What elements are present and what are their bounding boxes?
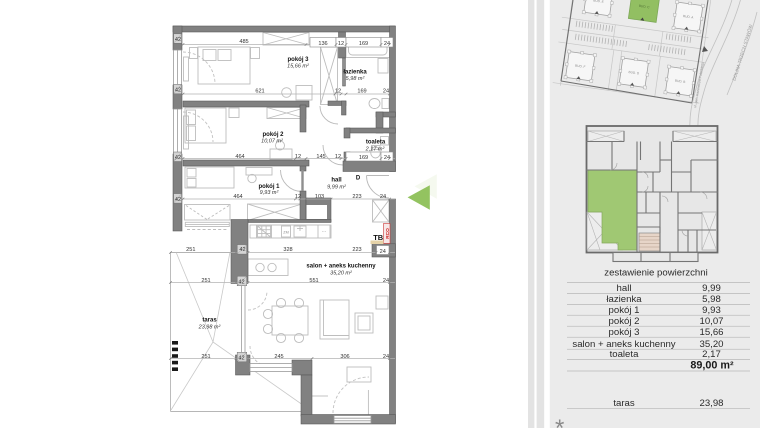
svg-text:621: 621 <box>255 89 264 95</box>
svg-text:23,98 m²: 23,98 m² <box>198 325 221 331</box>
svg-text:23,98: 23,98 <box>699 398 723 409</box>
svg-text:24: 24 <box>383 89 389 95</box>
svg-text:145: 145 <box>316 154 325 160</box>
svg-text:toaleta: toaleta <box>366 140 386 146</box>
svg-text:toaleta: toaleta <box>610 349 639 360</box>
svg-text:551: 551 <box>309 278 318 284</box>
svg-text:464: 464 <box>235 154 244 160</box>
svg-text:10,07: 10,07 <box>699 316 723 327</box>
svg-text:ZM: ZM <box>283 231 288 235</box>
svg-text:pokój 1: pokój 1 <box>609 305 640 316</box>
svg-text:hall: hall <box>617 283 632 294</box>
svg-text:···: ··· <box>322 229 327 235</box>
svg-text:pokój 3: pokój 3 <box>609 327 640 338</box>
svg-text:9,99 m²: 9,99 m² <box>327 185 346 191</box>
svg-text:245: 245 <box>274 354 283 360</box>
svg-text:5,98 m²: 5,98 m² <box>346 76 365 82</box>
svg-text:łazienka: łazienka <box>606 294 642 305</box>
svg-text:42: 42 <box>239 247 245 253</box>
svg-text:136: 136 <box>318 41 327 47</box>
svg-text:89,00 m²: 89,00 m² <box>690 360 734 372</box>
svg-text:42: 42 <box>238 355 244 361</box>
svg-text:pokój 2: pokój 2 <box>609 316 640 327</box>
svg-text:306: 306 <box>340 354 349 360</box>
svg-text:RCO: RCO <box>385 228 391 239</box>
svg-text:251: 251 <box>201 354 210 360</box>
svg-text:251: 251 <box>186 247 195 253</box>
svg-text:169: 169 <box>357 89 366 95</box>
svg-text:zestawienie powierzchni: zestawienie powierzchni <box>604 268 707 279</box>
svg-text:2,17: 2,17 <box>702 349 721 360</box>
svg-text:328: 328 <box>283 247 292 253</box>
svg-text:D: D <box>356 176 361 182</box>
svg-text:42: 42 <box>175 155 181 161</box>
svg-text:251: 251 <box>201 278 210 284</box>
svg-text:15,66 m²: 15,66 m² <box>287 64 309 70</box>
svg-text:pokój 3: pokój 3 <box>287 57 309 63</box>
svg-text:42: 42 <box>175 37 181 43</box>
svg-text:2,17 m²: 2,17 m² <box>365 147 385 153</box>
svg-text:24: 24 <box>384 155 390 161</box>
svg-text:taras: taras <box>202 318 217 324</box>
svg-text:42: 42 <box>175 197 181 203</box>
svg-text:24: 24 <box>380 249 386 255</box>
svg-text:10,07 m²: 10,07 m² <box>261 139 283 145</box>
svg-text:9,99: 9,99 <box>702 283 721 294</box>
svg-text:103: 103 <box>315 194 324 200</box>
svg-text:464: 464 <box>233 194 242 200</box>
svg-text:12: 12 <box>295 154 301 160</box>
svg-text:24: 24 <box>383 278 389 284</box>
svg-text:*: * <box>555 415 564 428</box>
svg-text:42: 42 <box>175 88 181 94</box>
svg-text:12: 12 <box>338 41 344 47</box>
svg-text:hall: hall <box>331 178 342 184</box>
svg-text:łazienka: łazienka <box>343 69 367 75</box>
svg-text:salon + aneks kuchenny: salon + aneks kuchenny <box>306 264 376 270</box>
svg-text:24: 24 <box>380 194 386 200</box>
svg-text:taras: taras <box>613 398 635 409</box>
svg-text:169: 169 <box>359 41 368 47</box>
svg-text:5,98: 5,98 <box>702 294 721 305</box>
svg-text:9,93: 9,93 <box>702 305 721 316</box>
svg-text:485: 485 <box>239 39 248 45</box>
svg-text:169: 169 <box>359 155 368 161</box>
svg-text:9,93 m²: 9,93 m² <box>260 190 279 196</box>
svg-text:42: 42 <box>238 279 244 285</box>
svg-text:223: 223 <box>352 194 361 200</box>
svg-text:24: 24 <box>383 354 389 360</box>
svg-text:15,66: 15,66 <box>699 327 723 338</box>
svg-text:35,20 m²: 35,20 m² <box>330 271 352 277</box>
svg-text:TB: TB <box>373 233 384 242</box>
svg-text:223: 223 <box>352 247 361 253</box>
svg-text:24: 24 <box>384 41 390 47</box>
svg-text:pokój 2: pokój 2 <box>262 132 284 138</box>
